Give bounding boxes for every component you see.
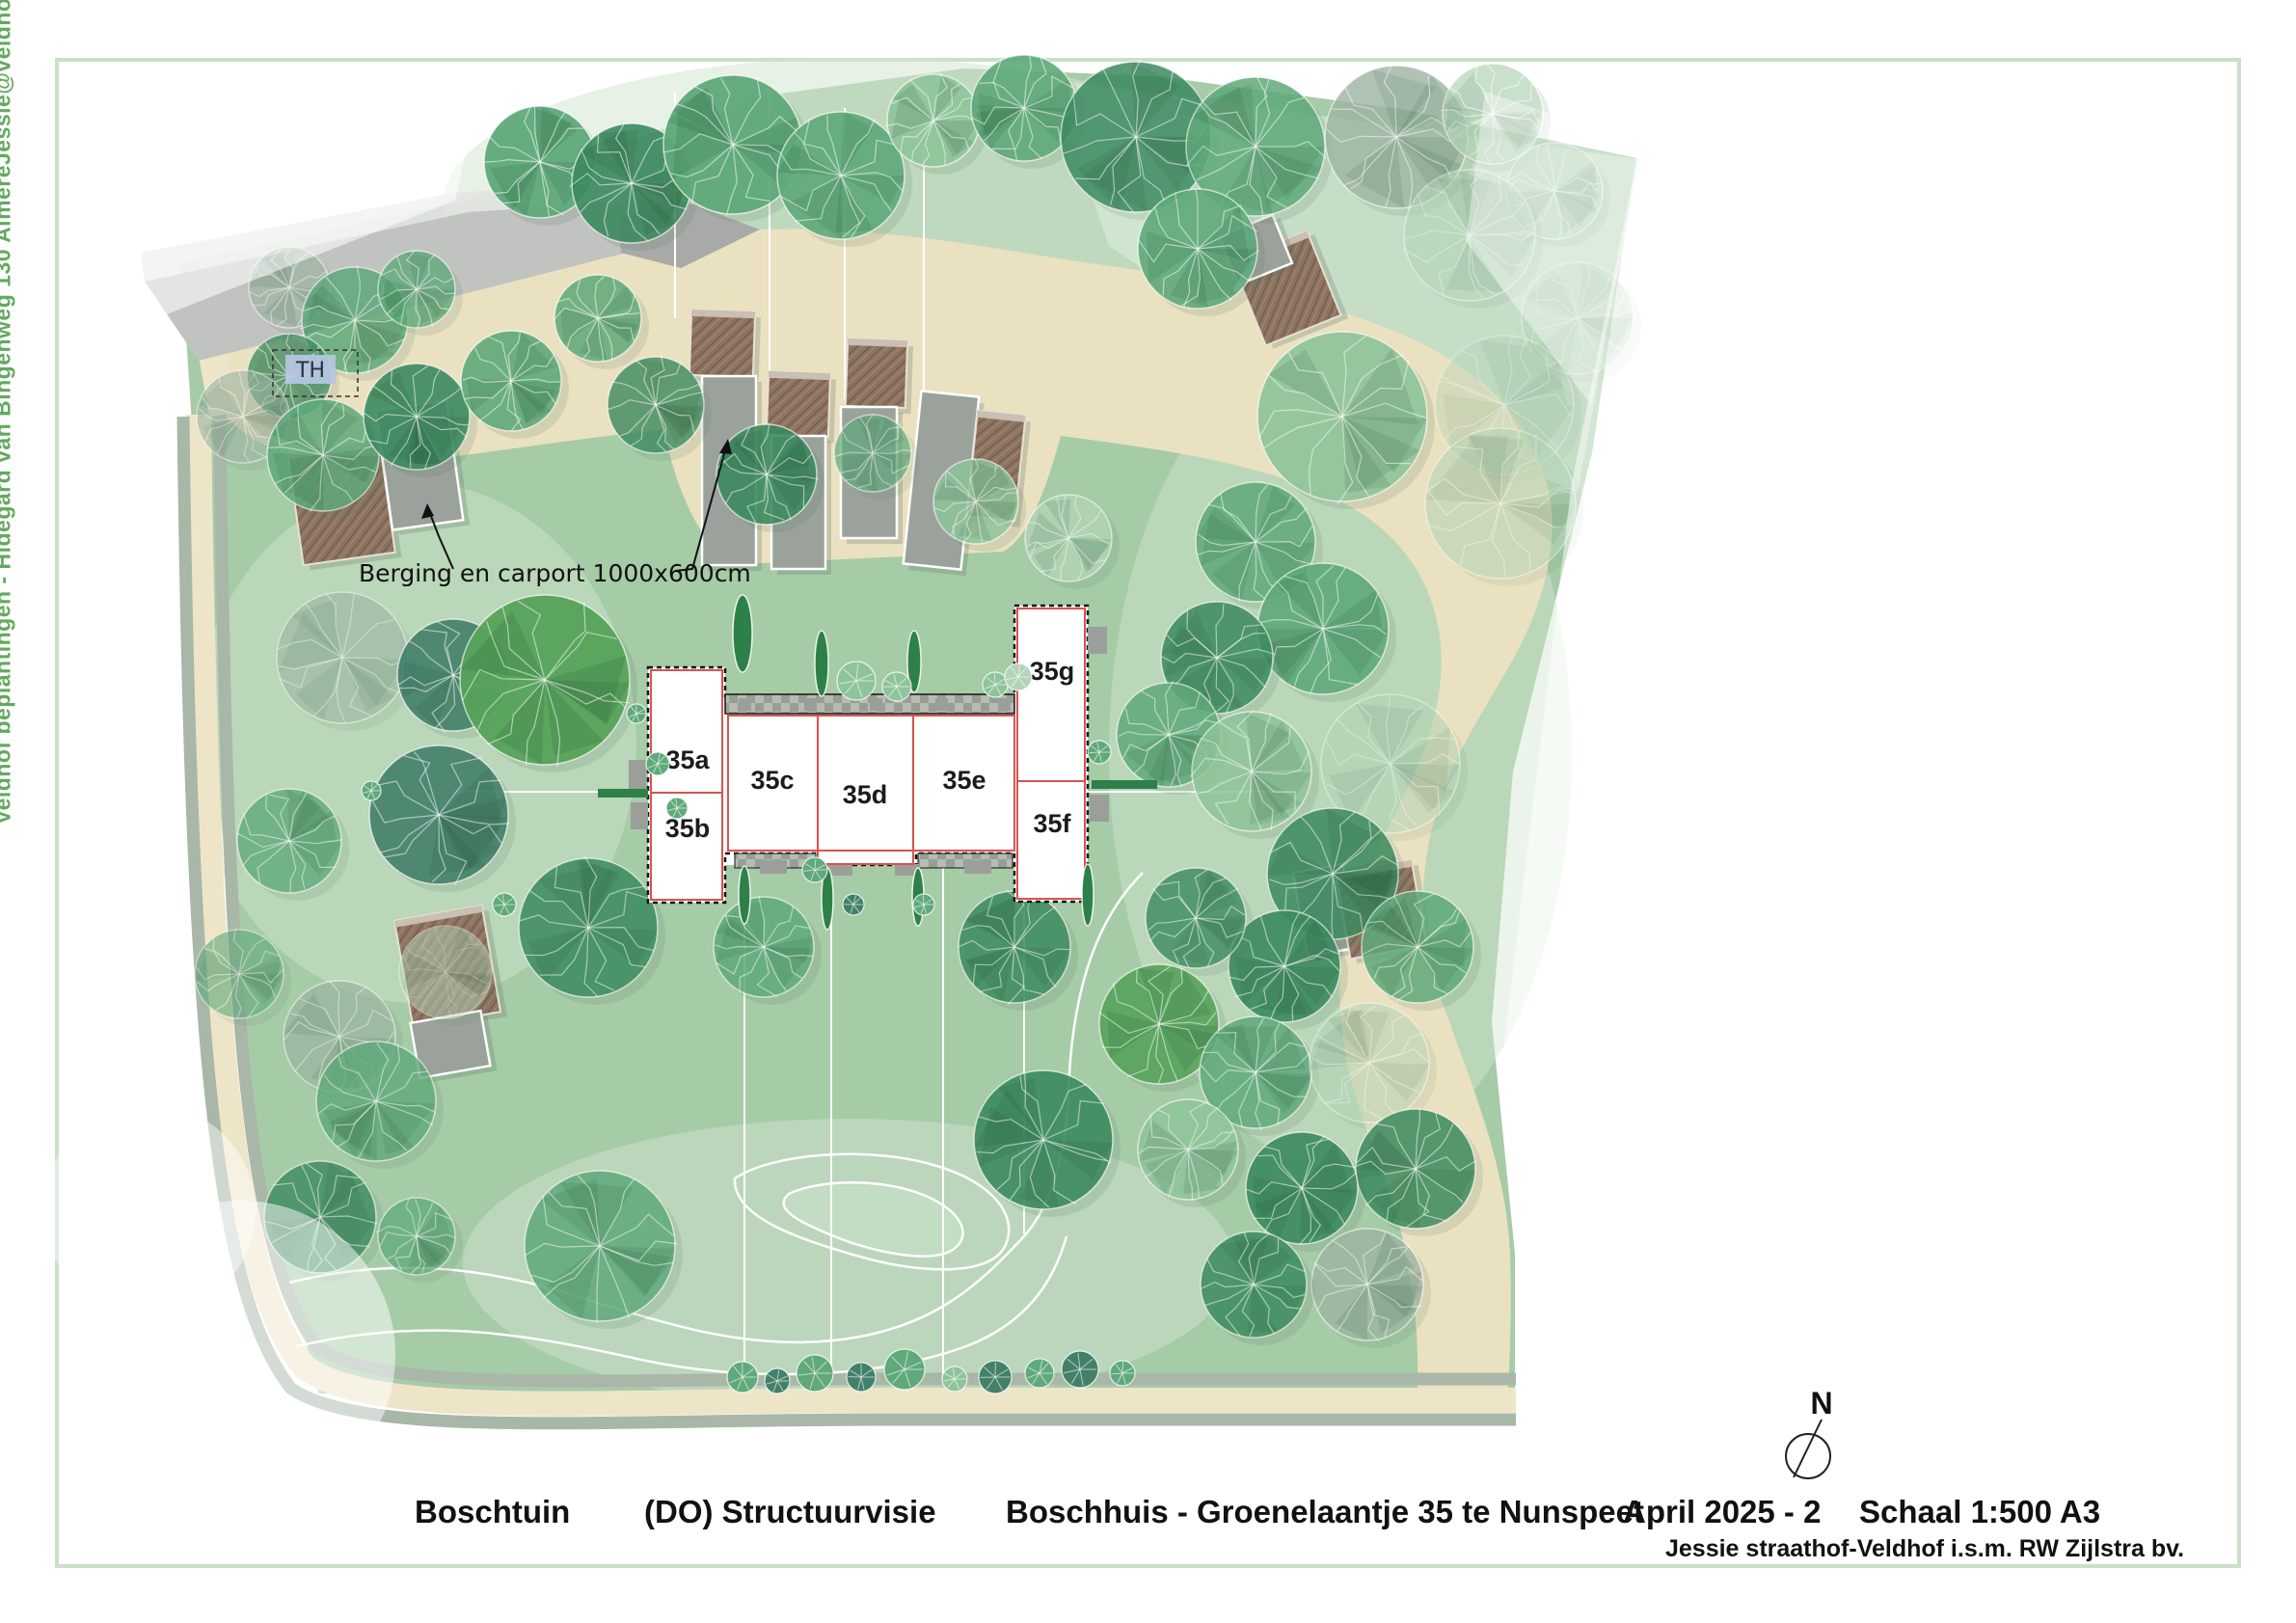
unit-label-35c: 35c — [750, 766, 794, 795]
shrub — [1005, 663, 1032, 690]
shrub — [1025, 1359, 1054, 1388]
shrub — [837, 662, 876, 700]
shrub — [1110, 1361, 1135, 1386]
title-location: Boschhuis - Groenelaantje 35 te Nunspeet — [1006, 1494, 1644, 1530]
shrub — [646, 752, 669, 775]
slim-shrub — [739, 866, 750, 924]
hedge-bar — [1092, 780, 1157, 789]
shrub — [802, 857, 827, 882]
unit-label-35d: 35d — [843, 780, 888, 809]
site-plan-drawing: 35a35b35c35d35e35f35g TH Berging en carp… — [0, 0, 2296, 1623]
building-roof — [846, 338, 914, 414]
shrub — [882, 672, 911, 701]
shrub — [843, 894, 864, 915]
shrub — [884, 1349, 925, 1390]
title-project: Boschtuin — [415, 1494, 570, 1530]
slim-shrub — [1082, 864, 1094, 926]
unit-label-35b: 35b — [665, 814, 711, 843]
slim-shrub — [815, 631, 828, 696]
unit-label-35f: 35f — [1033, 809, 1071, 838]
shrub — [493, 893, 516, 916]
hedge-bar — [598, 789, 648, 798]
shrub — [979, 1361, 1012, 1393]
berging-label: Berging en carport 1000x600cm — [359, 559, 751, 587]
shrub — [1088, 741, 1111, 764]
unit-label-35e: 35e — [942, 766, 986, 795]
north-label: N — [1810, 1386, 1832, 1420]
shrub — [913, 894, 934, 915]
north-arrow: N — [1786, 1386, 1833, 1478]
shrub — [362, 781, 381, 800]
plan-sheet: Veldhof beplantingen - Hidegard van Bing… — [0, 0, 2296, 1623]
shrub — [797, 1355, 833, 1392]
credit-line: Jessie straathof-Veldhof i.s.m. RW Zijls… — [1665, 1535, 2114, 1563]
slim-shrub — [733, 595, 752, 672]
shrub — [1062, 1351, 1098, 1388]
th-label: TH — [295, 359, 325, 383]
shrub — [847, 1363, 876, 1392]
shrub — [666, 798, 688, 819]
unit-label-35g: 35g — [1030, 657, 1075, 686]
title-phase: (DO) Structuurvisie — [644, 1494, 936, 1530]
shrub — [627, 704, 646, 723]
shrub — [942, 1366, 967, 1392]
title-date: April 2025 - 2 — [1623, 1494, 1821, 1530]
building-roof — [689, 310, 762, 383]
shrub — [983, 672, 1008, 697]
shrub — [727, 1362, 758, 1393]
unit-label-35a: 35a — [665, 745, 710, 774]
shrub — [765, 1368, 790, 1393]
title-scale: Schaal 1:500 A3 — [1859, 1494, 2100, 1530]
